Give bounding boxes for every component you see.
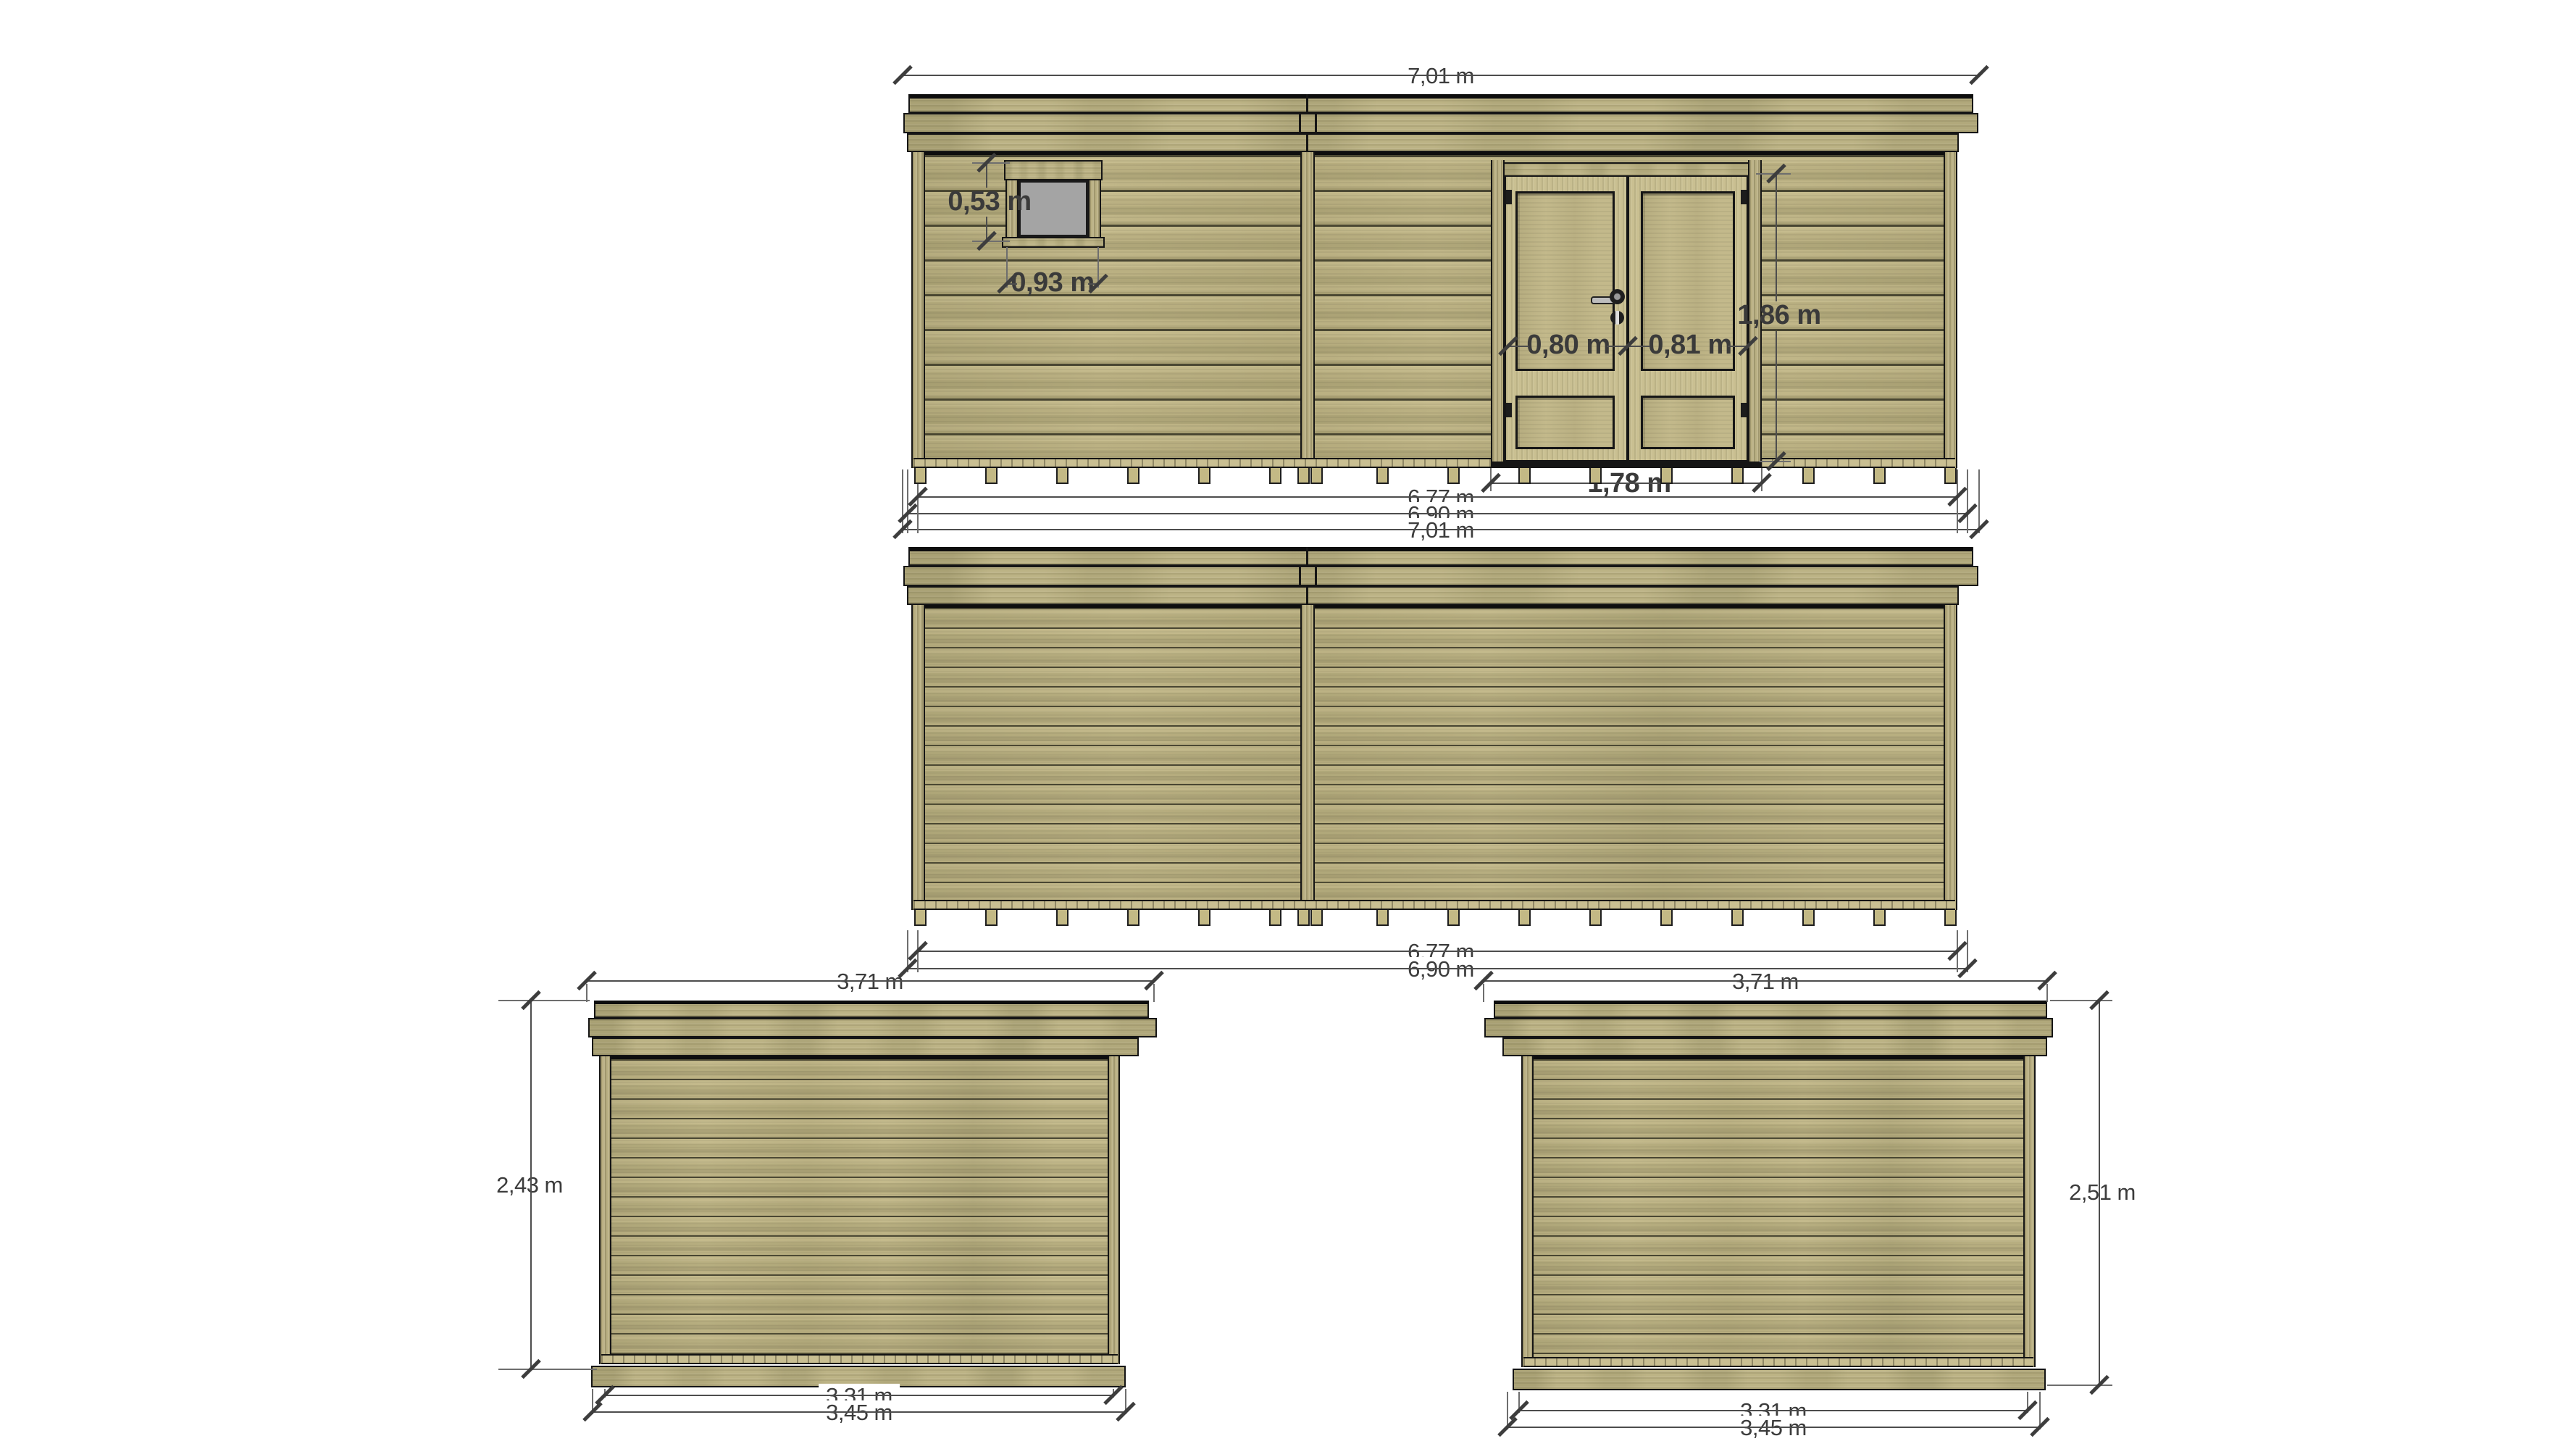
support-foot [1310,910,1323,926]
support-foot [1802,468,1815,484]
extension-line [1483,984,1484,1002]
support-foot [1802,910,1815,926]
support-foot [1198,468,1210,484]
right-side-elevation-view: 3,71 m 2,51 m 3,31 m 3,45 m [0,0,2576,1449]
support-foot [1376,468,1389,484]
support-foot [1518,468,1531,484]
dimension-line [1484,980,2047,982]
support-foot [1056,468,1069,484]
dimension-line [2099,1001,2100,1385]
support-foot [914,910,927,926]
extension-line [972,162,1010,164]
roof-fascia-bottom-board [1502,1037,2047,1056]
floor-deck-strip [1523,1357,2033,1367]
support-foot [1376,910,1389,926]
dimension-line [1519,1410,2028,1411]
dimension-line [587,980,1154,982]
dimension-line [1507,1427,2040,1428]
support-foot [1589,910,1602,926]
dim-label-right-height: 2,51 m [2062,1180,2143,1205]
extension-line [1967,469,1968,533]
support-foot [1944,468,1957,484]
support-foot [1297,468,1310,484]
support-foot [985,468,998,484]
foundation-base-plate [1513,1369,2046,1390]
support-foot [1269,910,1281,926]
support-foot [1310,468,1323,484]
dimension-line [903,529,1979,530]
support-foot [1447,468,1460,484]
support-foot [1660,468,1673,484]
dimension-line [986,163,987,188]
roof-fascia-top-board [1494,1001,2047,1018]
extension-line [498,1000,590,1001]
support-foot [1269,468,1281,484]
dim-label-right-roof-depth: 3,71 m [1725,969,1806,994]
dimension-line [1491,483,1762,484]
dimension-line [1776,174,1777,301]
corner-trim-right [2023,1056,2036,1367]
corner-trim-left [1521,1056,1534,1367]
elevation-drawing-canvas: 7,01 m 0,53 m 0,93 m 0,80 m 0,81 m 1,86 … [0,0,2576,1449]
dimension-line [530,1001,532,1369]
dimension-line [903,75,1979,76]
support-foot [1660,910,1673,926]
dim-label-right-base-depth: 3,45 m [1733,1416,1814,1440]
dimension-line [605,1395,1113,1396]
support-foot [914,468,927,484]
extension-line [2047,1385,2112,1386]
support-foot [985,910,998,926]
dimension-line [908,513,1967,514]
extension-line [1153,984,1155,1002]
extension-line [2050,1000,2112,1001]
dimension-line [918,496,1957,498]
dimension-line [918,951,1957,952]
extension-line [498,1369,597,1370]
support-foot [1447,910,1460,926]
support-foot [1056,910,1069,926]
support-foot [1518,910,1531,926]
extension-line [1978,469,1980,533]
dimension-line [1776,331,1777,462]
extension-line [2046,984,2048,1002]
dimension-line [908,968,1967,969]
support-foot [1731,468,1744,484]
support-foot [1873,910,1886,926]
support-foot [1731,910,1744,926]
support-foot [1297,910,1310,926]
extension-line [1957,469,1958,533]
support-foot [1127,468,1139,484]
dimension-line [1508,346,1529,347]
support-foot [1944,910,1957,926]
roof-fascia-middle-board [1484,1018,2053,1037]
extension-line [972,241,1010,242]
support-foot [1589,468,1602,484]
extension-line [586,984,587,1002]
support-foot [1198,910,1210,926]
dimension-line [593,1411,1126,1413]
right-side-wall-cladding [1521,1056,2036,1367]
support-foot [1873,468,1886,484]
extension-line [902,469,903,533]
support-foot [1127,910,1139,926]
